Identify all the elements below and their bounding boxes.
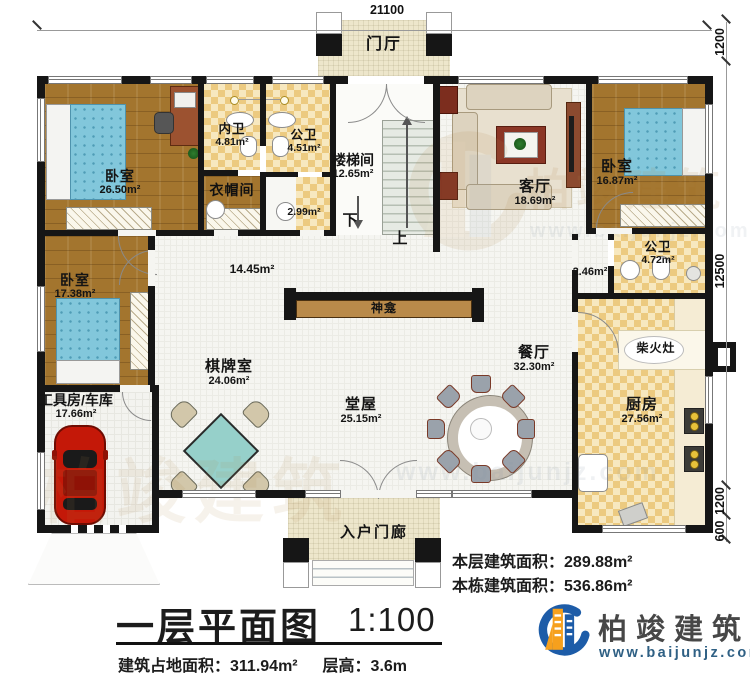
room-area: 17.66m² [20, 408, 132, 421]
room-label-dining: 餐厅 32.30m² [492, 344, 576, 374]
room-label-public-bath-top: 公卫 4.51m² [274, 128, 334, 154]
room-label-entry-hall: 门厅 [334, 36, 434, 54]
water-heater [686, 266, 701, 281]
car-top-view [52, 424, 108, 526]
room-label-game-room: 棋牌室 24.06m² [188, 358, 270, 388]
dimension-right-bottom-porch: 1200 [713, 481, 727, 521]
floor-area-label: 本层建筑面积： [452, 554, 564, 571]
bed-pillow-panel [46, 104, 72, 200]
floor-area-value: 289.88m² [564, 554, 633, 571]
porch-column-base [415, 562, 441, 588]
room-name: 堂屋 [322, 396, 400, 413]
window [458, 76, 544, 84]
laptop [174, 92, 196, 108]
room-label-stairwell: 楼梯间 12.65m² [322, 152, 384, 181]
driveway [28, 533, 160, 585]
building-area-label: 本栋建筑面积： [452, 578, 564, 595]
dimension-tick [32, 20, 42, 30]
dimension-right-porch: 1200 [713, 13, 727, 71]
wall-bed-bath [198, 76, 204, 236]
window [602, 525, 686, 533]
room-area: 2.46m² [568, 266, 612, 279]
room-name: 棋牌室 [188, 358, 270, 375]
dining-chair [427, 419, 445, 439]
main-entry-opening [348, 76, 424, 84]
room-name: 楼梯间 [322, 152, 384, 168]
room-area: 12.65m² [322, 168, 384, 181]
room-name: 神龛 [296, 302, 472, 316]
room-area: 16.87m² [572, 175, 662, 188]
stair-up-label: 上 [388, 230, 412, 247]
room-label-shower-area: 2.99m² [282, 206, 326, 218]
door-opening [608, 240, 614, 266]
room-label-cloakroom: 衣帽间 [192, 182, 272, 198]
window [37, 98, 45, 162]
shrine-wall-cap [472, 288, 484, 322]
room-label-bedroom-tl: 卧室 26.50m² [70, 168, 170, 197]
building-area-value: 536.86m² [564, 578, 633, 595]
window-sidelight [305, 490, 341, 498]
footprint-value: 311.94m² [230, 658, 298, 675]
window [37, 452, 45, 510]
window [150, 76, 192, 84]
room-name: 卧室 [30, 272, 120, 288]
tap-handle [280, 96, 289, 105]
window [598, 76, 688, 84]
title-underline [116, 642, 442, 645]
room-label-kitchen: 厨房 27.56m² [602, 396, 682, 426]
window [705, 376, 713, 424]
window [272, 76, 324, 84]
shrine-wall [288, 292, 480, 300]
floor-plan-canvas: 神龛 [0, 0, 750, 680]
window [452, 490, 532, 498]
sofa-top [466, 84, 552, 110]
area-label-nook: 2.46m² [568, 266, 612, 279]
door-opening [214, 230, 238, 236]
area-label-corridor: 14.45m² [222, 263, 282, 277]
door-opening [120, 385, 150, 392]
room-name: 公卫 [274, 128, 334, 142]
room-name: 客厅 [495, 178, 575, 195]
door-opening [596, 228, 632, 234]
wall-bath-kitchen [578, 293, 705, 299]
room-label-garage: 工具房/车库 17.66m² [20, 392, 132, 421]
room-label-shrine: 神龛 [296, 302, 472, 316]
door-opening [300, 230, 324, 236]
dimension-top-width: 21100 [322, 3, 452, 17]
kitchen-sink [578, 454, 608, 492]
gas-stove [684, 446, 704, 472]
room-area: 14.45m² [222, 263, 282, 277]
door-opening [260, 146, 266, 172]
plant [514, 138, 526, 150]
floor-area-line: 本层建筑面积：289.88m² [452, 548, 633, 572]
door-opening [238, 170, 260, 176]
wardrobe [66, 207, 152, 230]
porch-door-opening [340, 490, 416, 498]
tap-handle [230, 96, 239, 105]
chimney-flue [718, 348, 730, 366]
floor-drain-sink [206, 200, 225, 219]
room-label-bath-right: 公卫 4.72m² [626, 240, 690, 266]
tap-line [238, 99, 280, 100]
stair-treads [382, 120, 435, 235]
room-name: 柴火灶 [612, 342, 700, 356]
dining-chair [471, 375, 491, 393]
room-name: 衣帽间 [192, 182, 272, 198]
porch-column [415, 538, 441, 562]
room-label-bedroom-tr: 卧室 16.87m² [572, 158, 662, 188]
room-label-bedroom-left: 卧室 17.38m² [30, 272, 120, 301]
building-area-line: 本栋建筑面积：536.86m² [452, 572, 633, 596]
room-name: 厨房 [602, 396, 682, 413]
room-label-main-hall: 堂屋 25.15m² [322, 396, 400, 426]
room-name: 内卫 [202, 122, 262, 136]
room-area: 17.38m² [30, 288, 120, 301]
room-name: 门厅 [334, 36, 434, 54]
window [705, 104, 713, 174]
stair-down-label: 下 [338, 212, 362, 229]
door-opening [298, 172, 322, 177]
washbasin [268, 112, 296, 128]
dimension-line-top [37, 30, 712, 31]
garage-door [62, 525, 134, 533]
desk-chair [154, 112, 174, 134]
dining-table-center [470, 418, 492, 440]
room-area: 24.06m² [188, 375, 270, 388]
dimension-tick [702, 20, 712, 30]
room-name: 卧室 [70, 168, 170, 184]
room-name: 入户门廊 [314, 524, 434, 541]
height-label: 层高： [323, 658, 371, 675]
room-label-porch: 入户门廊 [314, 524, 434, 541]
wall-stair-right [433, 76, 440, 252]
door-opening [148, 250, 155, 286]
room-name: 卧室 [572, 158, 662, 175]
room-area: 4.72m² [626, 254, 690, 266]
footprint-label: 建筑占地面积： [118, 658, 230, 675]
room-label-firewood-stove: 柴火灶 [612, 342, 700, 356]
brand-name: 柏竣建筑 [598, 606, 750, 648]
porch-steps [312, 560, 414, 586]
room-label-inner-bath: 内卫 4.81m² [202, 122, 262, 148]
room-area: 2.99m² [282, 206, 326, 218]
bed-pillow-panel [682, 108, 706, 176]
room-name: 工具房/车库 [20, 392, 132, 408]
bed-pillow-panel [56, 360, 120, 384]
door-opening [118, 230, 156, 236]
plan-scale: 1:100 [348, 601, 436, 639]
dining-chair [517, 419, 535, 439]
room-area: 25.15m² [322, 413, 400, 426]
window [48, 76, 122, 84]
bed-mattress [56, 298, 120, 362]
room-area: 26.50m² [70, 184, 170, 197]
porch-column-base [283, 562, 309, 588]
room-area: 4.81m² [202, 136, 262, 148]
dimension-right-steps: 600 [713, 516, 727, 546]
room-name: 公卫 [626, 240, 690, 254]
dimension-right-main: 12500 [713, 242, 727, 300]
porch-column [283, 538, 309, 562]
window [182, 490, 256, 498]
room-area: 32.30m² [492, 361, 576, 374]
shrine-wall-cap [284, 288, 296, 320]
brand-website: www.baijunjz.com [599, 645, 750, 661]
footprint-line: 建筑占地面积：311.94m² 层高：3.6m [118, 652, 407, 676]
stair-arrow-line [406, 124, 408, 228]
wall-garage-right [152, 385, 159, 533]
room-label-living: 客厅 18.69m² [495, 178, 575, 208]
room-area: 18.69m² [495, 195, 575, 208]
dining-chair [471, 465, 491, 483]
gas-stove [684, 408, 704, 434]
floor-shower-room-tile [296, 177, 330, 230]
window [206, 76, 254, 84]
room-name: 餐厅 [492, 344, 576, 361]
window-sidelight [416, 490, 452, 498]
height-value: 3.6m [371, 658, 407, 675]
room-area: 27.56m² [602, 413, 682, 426]
wall-living-bedroom [586, 76, 592, 234]
brand-logo-icon [534, 602, 590, 664]
